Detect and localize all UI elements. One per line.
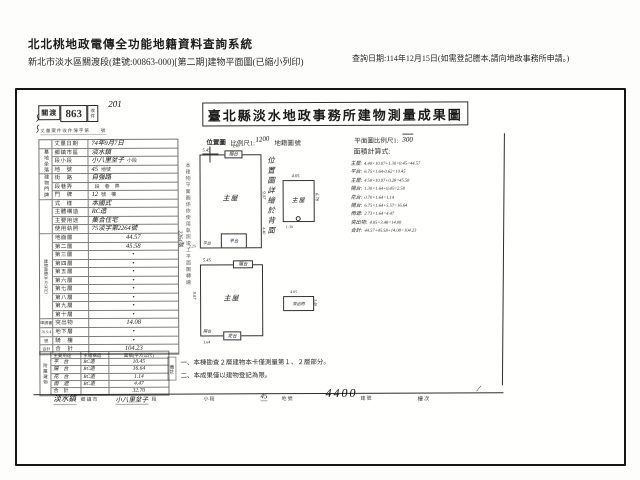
plan-corner-label: 陽台: [203, 328, 211, 334]
note-line-1: 一、本棟勘查２層建物本卡僅測量第１、２層部分。: [180, 355, 450, 366]
dimension-label: 1.30: [232, 143, 239, 148]
calc-line: 合計:44.57+45.58+14.08=104.23: [351, 226, 501, 235]
dimension-label: 5.45: [203, 257, 211, 262]
row-label: 丈量日期: [52, 140, 88, 148]
footer-floor-label: 樓次: [418, 395, 431, 403]
dimension-label: 6.78: [315, 193, 320, 201]
plan-scale-label: 平面圖比例尺1:: [354, 135, 398, 145]
dimension-label: 5.45: [202, 147, 210, 152]
dimension-label: 1.30: [286, 224, 293, 229]
dimension-label: 9.07: [192, 292, 197, 300]
table-rows: 丈量日期 74年9月7日 鄉鎮市區淡水鎮 段小段小八里坌子小段 地 號45地號 …: [52, 140, 178, 354]
footer-lot-label: 地號: [282, 395, 294, 402]
system-title: 北北桃地政電傳全功能地籍資料查詢系統: [28, 36, 253, 52]
group-annex-building: 附屬建物: [40, 352, 51, 395]
scan-right-edge: [502, 133, 505, 385]
area-calculation-panel: 主屋:4.40×10.07+1.30×0.45=44.57 平台:6.75×1.…: [350, 159, 500, 235]
scanned-document-frame: 〜〜 關渡 863 收件 201 丈量案件收件簿字第 號 臺北縣淡水地政事務所建…: [15, 88, 626, 466]
stamp-register-line: 丈量案件收件簿字第 號: [40, 128, 106, 135]
footer-section-value: 小八里坌子: [116, 394, 149, 405]
floor-plan-roof-projection: 突出物 4.05 3.48: [283, 296, 314, 311]
document-subtitle: 新北市淡水區關渡段(建號:00863-000)[第二期]建物平面圖(已縮小列印): [28, 55, 303, 68]
plan-main-room-label: 突出物: [284, 301, 313, 307]
query-date: 查詢日期:114年12月15日(如需登記謄本,請向地政事務所申請。): [352, 53, 569, 64]
footer-building-number-label: 建號: [361, 395, 373, 402]
plan-balcony-box: 陽台: [224, 150, 242, 158]
notes-label: 備註: [167, 357, 176, 381]
stamp-side-label: 收件: [87, 105, 98, 122]
footer-subsection-label: 小段: [204, 395, 216, 402]
receipt-stamp: 關渡 863 收件 201: [38, 105, 98, 122]
apply-book-cell: 申請書: [40, 320, 53, 329]
plan-balcony-box: 陽台: [233, 260, 253, 268]
floor-plan-2f: 陽台 主屋 花台 陽台 5.45 9.07 1.64: [200, 264, 263, 336]
plan-main-room-label: 主屋: [201, 193, 261, 203]
dimension-label: 2.25: [189, 244, 196, 249]
row-value: 74年9月7日: [88, 140, 177, 148]
plan-main-room-label: 主屋: [284, 195, 314, 204]
footer-building-number-value: 4400: [325, 386, 357, 401]
footer-town-value: 淡水鎮: [54, 393, 77, 405]
group-building-area: 建物面積(平方公尺): [40, 234, 53, 320]
dimension-label: 9.07: [262, 191, 267, 199]
document-title: 臺北縣淡水地政事務所建物測量成果圖: [202, 101, 468, 126]
group-building-address: 建物門牌: [40, 174, 53, 200]
sheet-number-label: 號: [294, 137, 301, 147]
cadastral-map-label: 地籍圖: [274, 137, 294, 147]
apply-no-cell: 號: [40, 337, 53, 346]
plan-circle-mark: [296, 216, 301, 221]
stamp-number: 863: [60, 105, 87, 122]
plan-main-room-label: 主屋: [201, 293, 262, 303]
dimension-label: 4.05: [292, 173, 300, 178]
plan-terrace-box: 平台: [221, 233, 247, 248]
group-blank: [40, 200, 53, 234]
area-calc-label: 面積計算式:: [353, 147, 390, 157]
floor-plan-1f: 陽台 主屋 平台 平台 5.45 1.30 9.07 4.40 2.25: [199, 154, 261, 248]
footer-section-label: 段: [152, 396, 158, 403]
print-preview-page: 北北桃地政電傳全功能地籍資料查詢系統 新北市淡水區關渡段(建號:00863-00…: [0, 0, 640, 480]
transcription-note: 本建物平面圖係依使用執照竣工平面圖轉繪: [183, 163, 191, 363]
group-site-location: 基地坐落: [39, 149, 52, 175]
dimension-label: 1.64: [203, 339, 210, 344]
footer-town-label: 鄉鎮市: [81, 396, 99, 403]
location-map-label: 位置圖: [206, 136, 226, 146]
floor-plan-mid: 主屋 4.05 6.78 1.30: [283, 180, 315, 222]
plan-planter-box: 花台: [223, 331, 241, 340]
scanned-document: 〜〜 關渡 863 收件 201 丈量案件收件簿字第 號 臺北縣淡水地政事務所建…: [16, 89, 625, 466]
plan-scale-value: 300: [402, 134, 413, 144]
dimension-label: 4.05: [290, 289, 297, 294]
dimension-label: 3.48: [313, 299, 318, 306]
scale-value: 1200: [255, 135, 270, 144]
note-line-2: 二、本成果僅以建物登記為限。: [180, 368, 450, 379]
group-blank: [39, 140, 52, 149]
stamp-handwritten-note: 201: [108, 99, 122, 109]
apply-date-cell: 76.9.4: [40, 328, 53, 337]
building-info-table: 基地坐落 建物門牌 建物面積(平方公尺) 申請書 76.9.4 號 合計 丈量日…: [38, 139, 179, 355]
table-group-column: 基地坐落 建物門牌 建物面積(平方公尺) 申請書 76.9.4 號 合計: [39, 140, 53, 354]
annex-building-table: 附屬建物 主要用途 主體構造 面積(平方公尺) 平 台RC造10.45 陽 台R…: [39, 351, 169, 397]
footer-lot-value: 45: [261, 392, 268, 401]
dimension-label: 4.40: [262, 227, 267, 234]
stamp-office: 關渡: [38, 105, 60, 120]
location-map-note: 位置圖詳繪於背面: [265, 156, 277, 276]
plan-corner-label: 平台: [203, 240, 211, 246]
